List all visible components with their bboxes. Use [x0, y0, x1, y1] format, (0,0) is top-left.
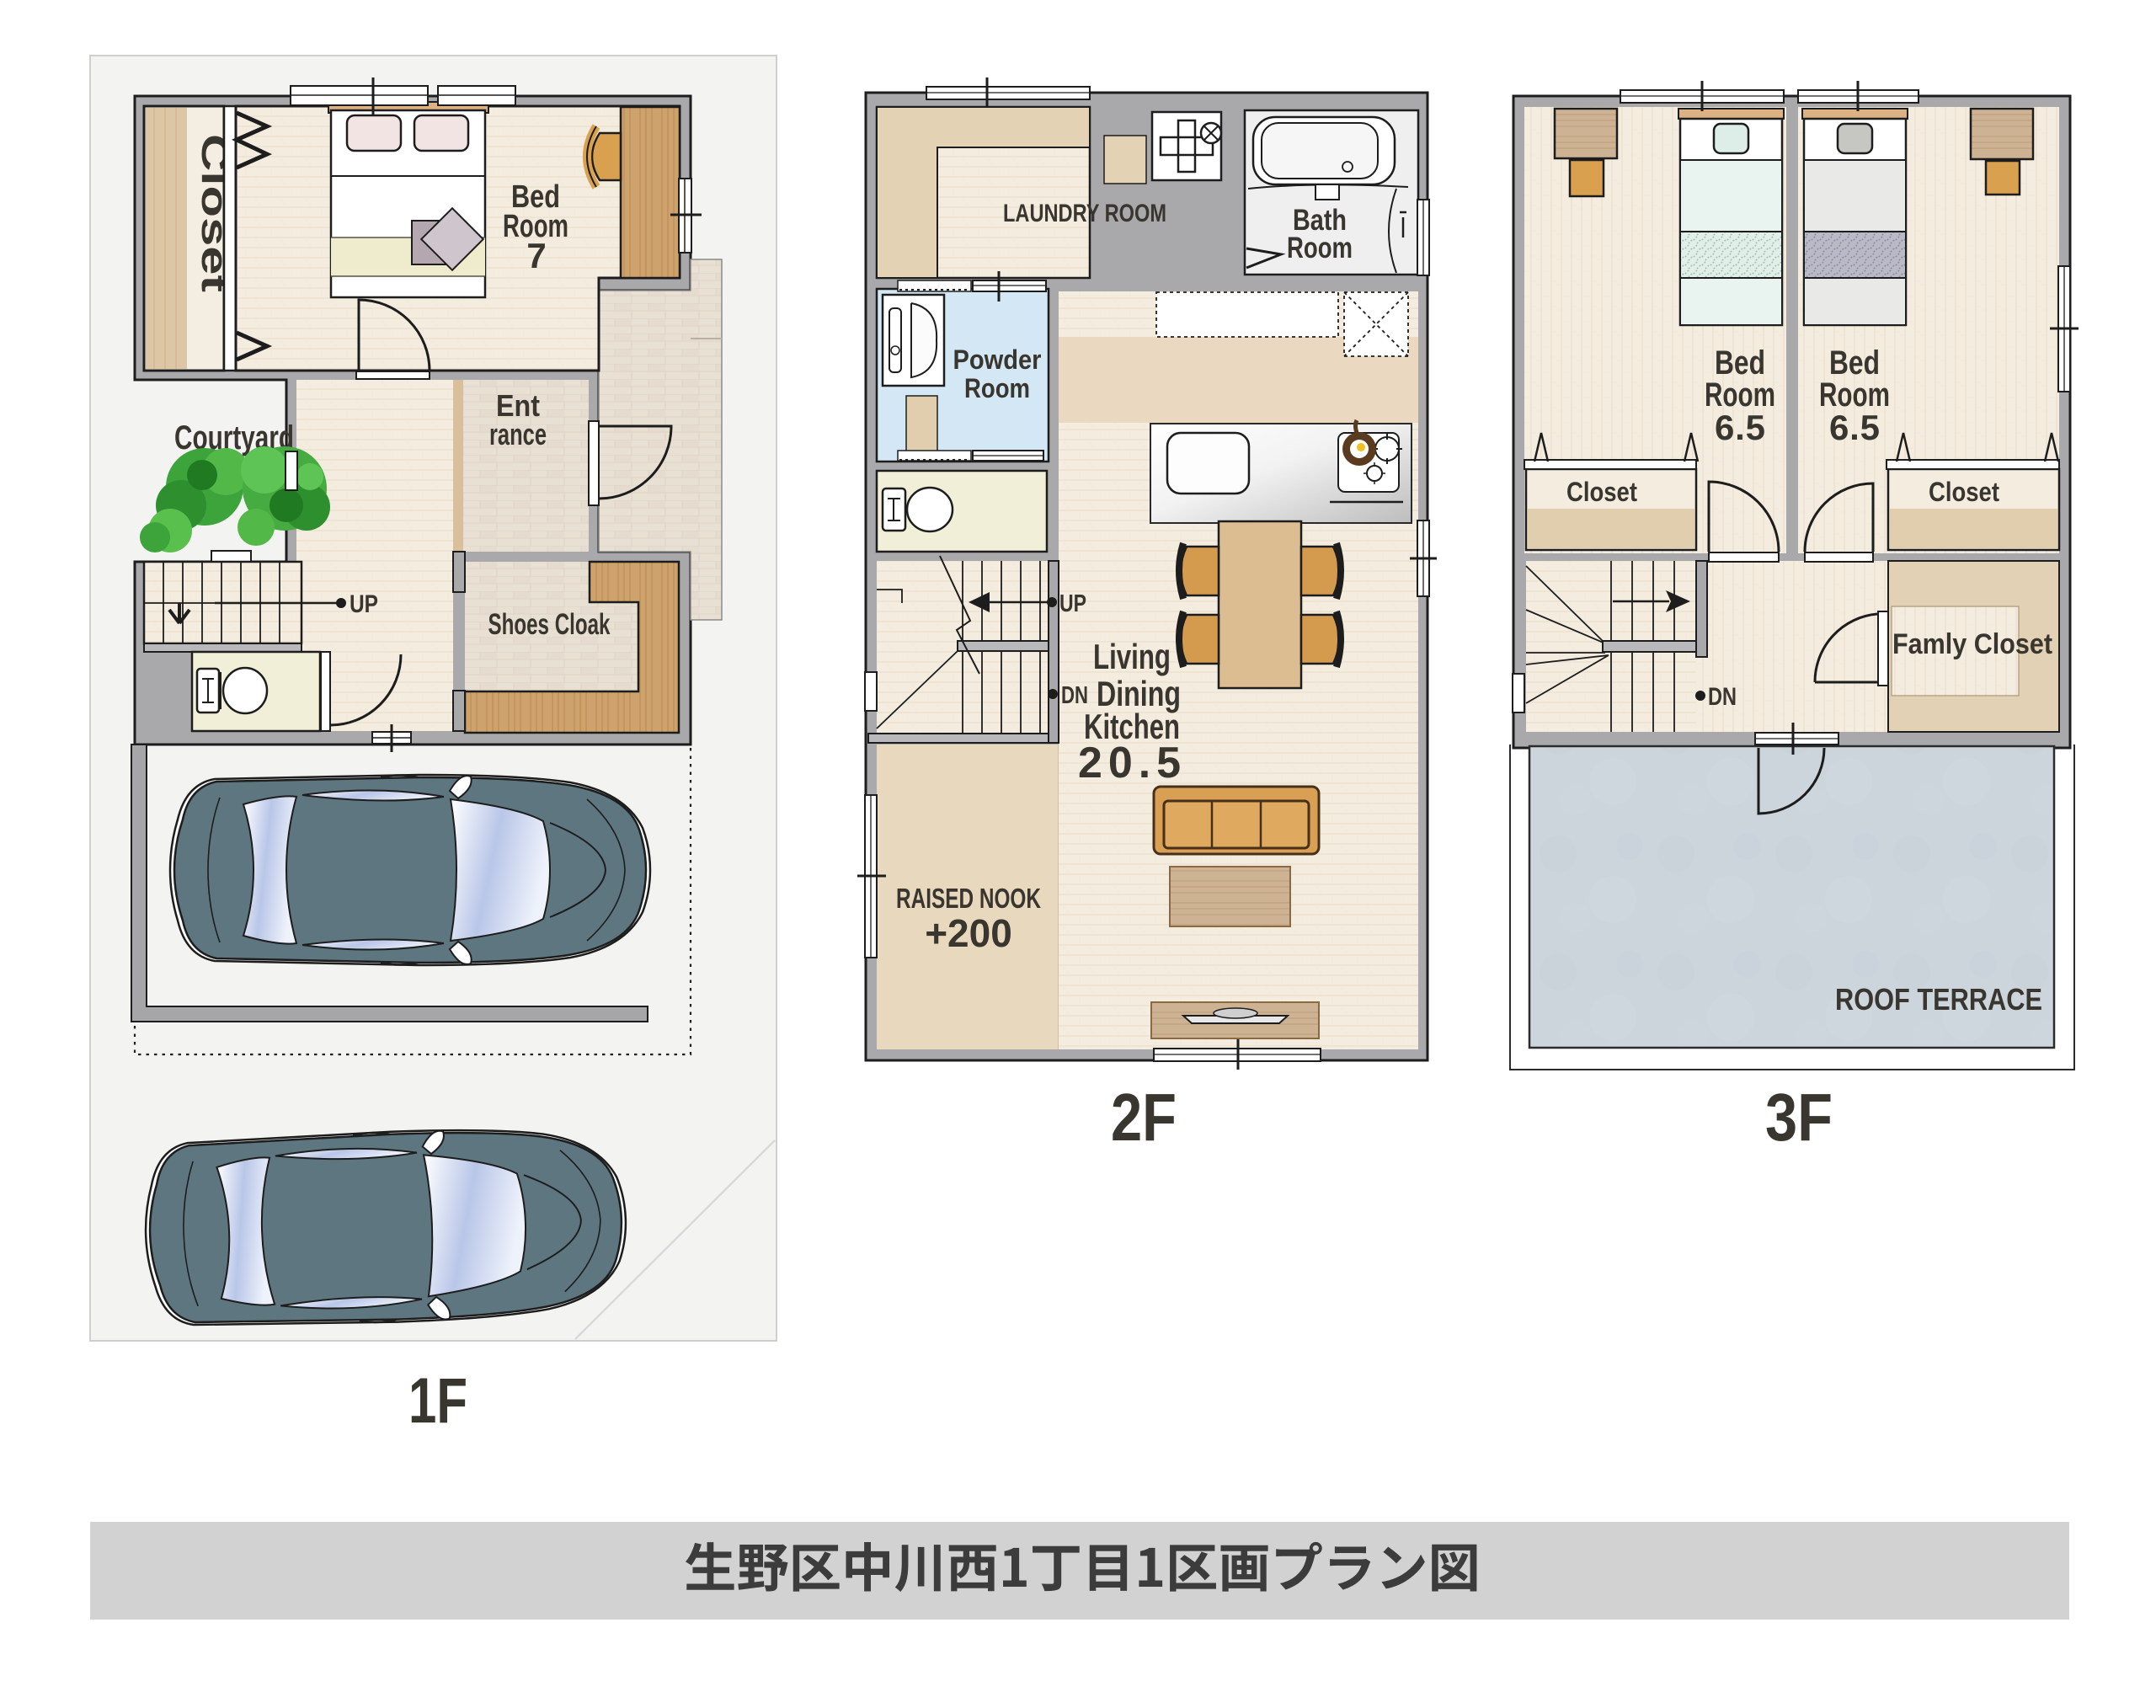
svg-text:3F: 3F — [1765, 1080, 1833, 1155]
svg-text:Closet: Closet — [1929, 477, 1999, 507]
svg-text:Powder: Powder — [953, 344, 1042, 375]
svg-text:UP: UP — [350, 590, 378, 618]
svg-text:Room: Room — [964, 373, 1030, 403]
svg-text:RAISED NOOK: RAISED NOOK — [896, 883, 1041, 914]
svg-text:6.5: 6.5 — [1715, 408, 1765, 447]
svg-text:1F: 1F — [408, 1365, 467, 1437]
svg-text:Living: Living — [1093, 637, 1171, 676]
svg-text:DN: DN — [1708, 683, 1737, 711]
svg-text:20.5: 20.5 — [1078, 739, 1181, 787]
svg-text:LAUNDRY ROOM: LAUNDRY ROOM — [1003, 200, 1166, 227]
svg-text:7: 7 — [526, 236, 546, 275]
svg-text:Room: Room — [1287, 232, 1353, 264]
svg-text:Shoes Cloak: Shoes Cloak — [488, 608, 611, 641]
svg-text:DN: DN — [1061, 682, 1088, 709]
svg-text:2F: 2F — [1111, 1080, 1177, 1155]
svg-text:6.5: 6.5 — [1829, 408, 1880, 447]
svg-text:ROOF TERRACE: ROOF TERRACE — [1835, 982, 2042, 1017]
svg-text:+200: +200 — [925, 911, 1012, 955]
svg-text:rance: rance — [489, 417, 547, 451]
svg-text:Famly Closet: Famly Closet — [1892, 628, 2052, 660]
svg-text:UP: UP — [1059, 590, 1086, 617]
svg-text:Closet: Closet — [1566, 477, 1637, 507]
